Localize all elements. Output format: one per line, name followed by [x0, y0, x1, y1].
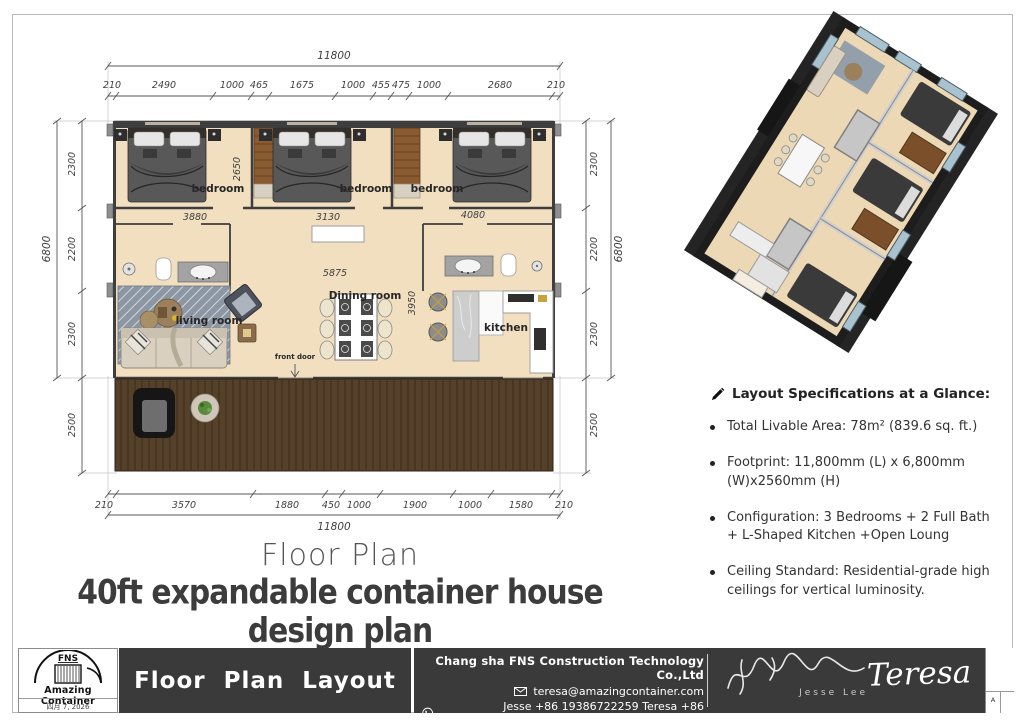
- dim-interior: 3880: [183, 212, 207, 223]
- dim-label: 1000: [417, 80, 441, 91]
- dim-label: 455: [372, 80, 390, 91]
- revision-cell: A: [985, 648, 1013, 713]
- room-label-bedroom3: bedroom: [411, 183, 464, 195]
- room-label-front-door: front door: [275, 353, 316, 361]
- company-name: Chang sha FNS Construction Technology Co…: [422, 654, 704, 682]
- dim-label: 210: [547, 80, 565, 91]
- contact-block: Chang sha FNS Construction Technology Co…: [422, 654, 704, 723]
- bullet-dot: [710, 425, 715, 430]
- phone-icon: [422, 707, 433, 719]
- bullet-dot: [710, 570, 715, 575]
- dim-label: 450: [322, 500, 340, 511]
- email-line: teresa@amazingcontainer.com: [422, 685, 704, 698]
- dim-interior: 5875: [323, 268, 347, 279]
- dim-label: 3570: [172, 500, 196, 511]
- dim-label: 1000: [220, 80, 244, 91]
- spec-text: Configuration: 3 Bedrooms + 2 Full Bath …: [727, 509, 1002, 547]
- dim-left: 2300 2200 2300 2500 6800: [41, 118, 86, 476]
- dim-label: 2300: [67, 322, 78, 346]
- email-address: teresa@amazingcontainer.com: [533, 685, 704, 698]
- sheet-date: 四月 7, 2026: [19, 698, 117, 713]
- spec-text: Total Livable Area: 78m² (839.6 sq. ft.): [727, 418, 977, 437]
- logo-fns-text: FNS: [58, 654, 78, 664]
- dim-label: 210: [95, 500, 113, 511]
- dim-label: 2200: [589, 237, 600, 261]
- dim-interior: 2650: [232, 157, 243, 181]
- room-label-kitchen: kitchen: [484, 322, 528, 334]
- isometric-render: [655, 2, 1020, 367]
- spec-item: Configuration: 3 Bedrooms + 2 Full Bath …: [710, 509, 1002, 547]
- dim-bottom-total: 11800: [317, 521, 351, 533]
- dim-label: 1000: [458, 500, 482, 511]
- room-label-dining: Dining room: [329, 290, 402, 302]
- bullet-dot: [710, 516, 715, 521]
- bullet-dot: [710, 461, 715, 466]
- dim-label: 1580: [509, 500, 533, 511]
- dim-label: 2200: [67, 237, 78, 261]
- page-title: 40ft expandable container house design p…: [33, 573, 647, 651]
- dim-interior: 3950: [407, 291, 418, 315]
- dim-label: 210: [103, 80, 121, 91]
- spec-text: Footprint: 11,800mm (L) x 6,800mm (W)x25…: [727, 454, 1002, 492]
- dim-left-total: 6800: [41, 235, 53, 262]
- dim-label: 1880: [275, 500, 299, 511]
- dim-label: 210: [555, 500, 573, 511]
- dim-top-total: 11800: [317, 50, 351, 62]
- dim-label: 1900: [403, 500, 427, 511]
- spec-item: Ceiling Standard: Residential-grade high…: [710, 563, 1002, 601]
- dim-label: 2500: [67, 413, 78, 437]
- envelope-icon: [514, 687, 527, 696]
- revision-letter: A: [986, 696, 1000, 704]
- footer-divider: [707, 654, 708, 707]
- drawing-sheet: 11800 210 2490 1000 465 1675 1000 455 47…: [0, 0, 1024, 723]
- company-info-cell: Chang sha FNS Construction Technology Co…: [414, 648, 985, 713]
- dim-label: 465: [250, 80, 268, 91]
- dim-interior: 3130: [316, 212, 340, 223]
- jesse-signature: Jesse Lee: [714, 652, 874, 710]
- dim-label: 1000: [347, 500, 371, 511]
- dim-label: 1675: [290, 80, 314, 91]
- tv-console: [312, 226, 364, 242]
- dim-label: 475: [392, 80, 410, 91]
- dining-table: [320, 294, 392, 360]
- dim-label: 2300: [589, 152, 600, 176]
- jesse-signature-label: Jesse Lee: [799, 688, 868, 698]
- sheet-title-cell: Floor Plan Layout: [119, 648, 411, 713]
- dim-label: 2490: [152, 80, 176, 91]
- dim-label: 2300: [67, 152, 78, 176]
- specs-header-label: Layout Specifications at a Glance:: [732, 386, 990, 402]
- house-plan: 2650 3880 3130 4080 5875 3950 bedroom be…: [107, 121, 561, 471]
- spec-item: Total Livable Area: 78m² (839.6 sq. ft.): [710, 418, 1002, 437]
- teresa-signature: Teresa: [866, 654, 971, 694]
- phone-numbers: Jesse +86 19386722259 Teresa +86 1855929…: [439, 700, 704, 723]
- room-label-bedroom1: bedroom: [192, 183, 245, 195]
- spec-item: Footprint: 11,800mm (L) x 6,800mm (W)x25…: [710, 454, 1002, 492]
- company-logo-cell: FNS Amazing Container 四月 7, 2026: [18, 648, 118, 713]
- room-label-living: living room: [176, 315, 243, 327]
- page-subtitle: Floor Plan: [60, 538, 620, 573]
- specs-header: Layout Specifications at a Glance:: [710, 386, 1002, 402]
- dim-label: 1000: [341, 80, 365, 91]
- revision-cell-line: [1000, 691, 1001, 713]
- deck: [115, 379, 553, 471]
- dim-right: 2300 2200 2300 2500 6800: [582, 118, 625, 476]
- dim-bottom: 210 3570 1880 450 1000 1900 1000 1580 21…: [95, 490, 573, 533]
- room-label-bedroom2: bedroom: [340, 183, 393, 195]
- phone-line: Jesse +86 19386722259 Teresa +86 1855929…: [422, 700, 704, 723]
- dim-label: 2680: [488, 80, 512, 91]
- dim-top: 11800 210 2490 1000 465 1675 1000 455 47…: [103, 50, 565, 100]
- dim-interior: 4080: [461, 210, 485, 221]
- floor-plan-drawing: 11800 210 2490 1000 465 1675 1000 455 47…: [25, 28, 625, 538]
- dim-right-total: 6800: [613, 235, 625, 262]
- specs-panel: Layout Specifications at a Glance: Total…: [710, 386, 1002, 618]
- dim-label: 2500: [589, 413, 600, 437]
- fns-arch-logo-icon: FNS: [19, 650, 117, 686]
- pencil-icon: [710, 387, 725, 402]
- sheet-title-label: Floor Plan Layout: [134, 668, 396, 694]
- spec-text: Ceiling Standard: Residential-grade high…: [727, 563, 1002, 601]
- dim-label: 2300: [589, 322, 600, 346]
